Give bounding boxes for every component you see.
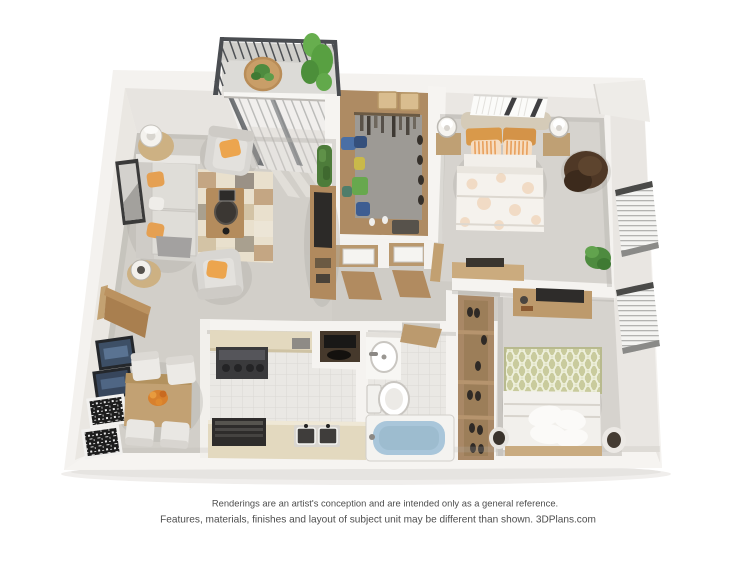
svg-text:Features, materials, finishes: Features, materials, finishes and layout… (160, 515, 596, 526)
svg-text:Renderings are an artist's con: Renderings are an artist's conception an… (212, 498, 558, 509)
